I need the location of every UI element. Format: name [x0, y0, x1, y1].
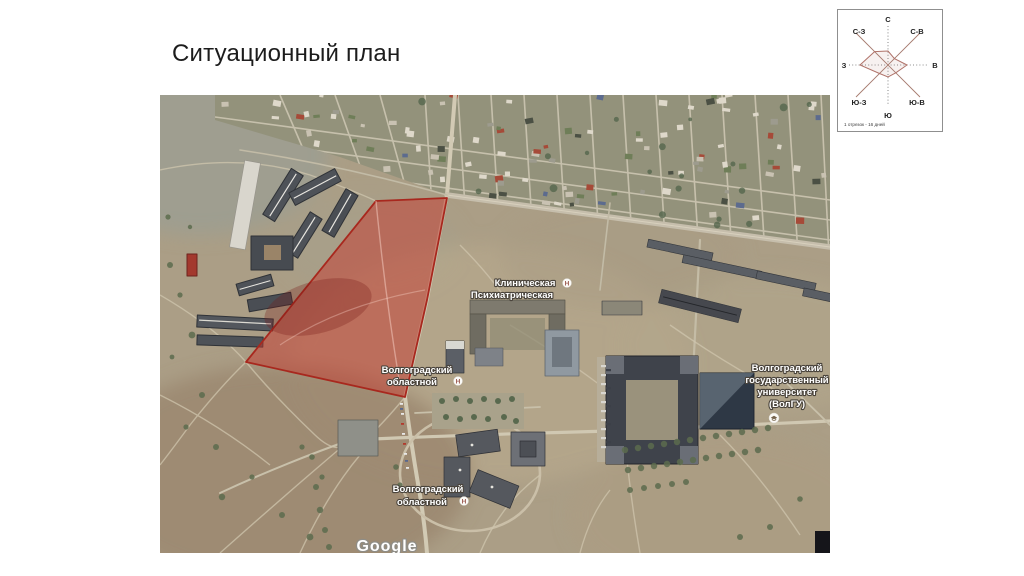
map-label: Волгоградский	[393, 484, 464, 495]
map-label: Психиатрическая	[471, 290, 553, 301]
depot-building	[338, 420, 378, 456]
situational-map-image: Клиническая Психиатрическая H Волгоградс…	[160, 95, 830, 553]
hospital-marker-icon: H	[454, 377, 463, 386]
map-dark-corner	[815, 531, 830, 553]
map-label: государственный	[745, 375, 828, 386]
wind-rose-direction-label: С-З	[853, 27, 866, 36]
hospital-marker-icon: H	[460, 497, 469, 506]
wind-rose-panel: С С-В В Ю-В Ю Ю-З З С-З 1 отрезок - 16 д…	[837, 9, 943, 132]
map-label: Клиническая	[495, 278, 556, 289]
map-label: Волгоградский	[752, 363, 823, 374]
wind-rose-direction-label: С	[885, 15, 891, 24]
wind-rose-direction-label: Ю-В	[909, 98, 925, 107]
map-label: (ВолГУ)	[769, 399, 805, 410]
map-label: Волгоградский	[382, 365, 453, 376]
wind-rose-direction-label: Ю	[884, 111, 892, 120]
slide-canvas: Ситуационный план	[0, 0, 1024, 576]
map-label: университет	[757, 387, 817, 398]
svg-text:H: H	[565, 280, 570, 287]
google-watermark: Google	[356, 538, 417, 553]
svg-text:H: H	[456, 378, 461, 385]
hospital-marker-icon: H	[563, 279, 572, 288]
map-label: областной	[397, 497, 447, 508]
wind-rose-direction-label: З	[842, 61, 847, 70]
wind-rose-polygon	[860, 51, 907, 77]
university-marker-icon	[769, 413, 779, 423]
page-title: Ситуационный план	[172, 40, 400, 68]
wind-rose-direction-label: С-В	[910, 27, 924, 36]
map-label: областной	[387, 377, 437, 388]
wind-rose-direction-label: В	[932, 61, 938, 70]
svg-text:H: H	[462, 498, 467, 505]
wind-rose-direction-label: Ю-З	[852, 98, 867, 107]
wind-rose-caption: 1 отрезок - 16 дней	[844, 121, 885, 127]
